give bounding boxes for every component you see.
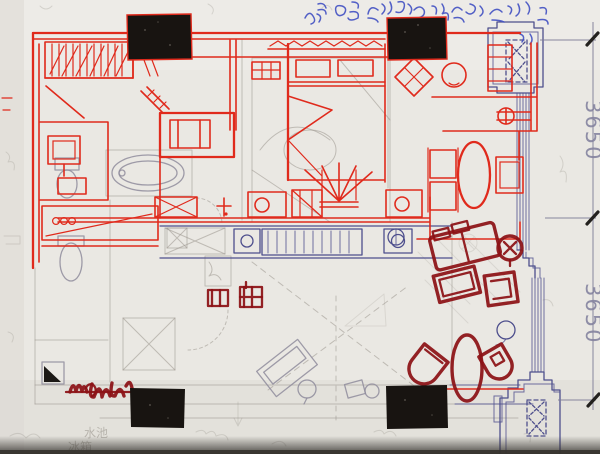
door-dot [224, 212, 227, 215]
structural-column [386, 385, 448, 429]
floor-plan-sketch-photo: 3650 3650 水池 冰箱 [0, 0, 600, 454]
paper-shade-left [0, 0, 24, 454]
structural-column [387, 17, 447, 60]
dimension-label-lower: 3650 [581, 283, 600, 344]
structural-column [130, 388, 185, 428]
photo-edge-line [0, 450, 600, 454]
floor-plan-canvas: 3650 3650 水池 冰箱 [0, 0, 600, 454]
structural-column [127, 14, 192, 60]
dimension-label-upper: 3650 [581, 100, 600, 161]
